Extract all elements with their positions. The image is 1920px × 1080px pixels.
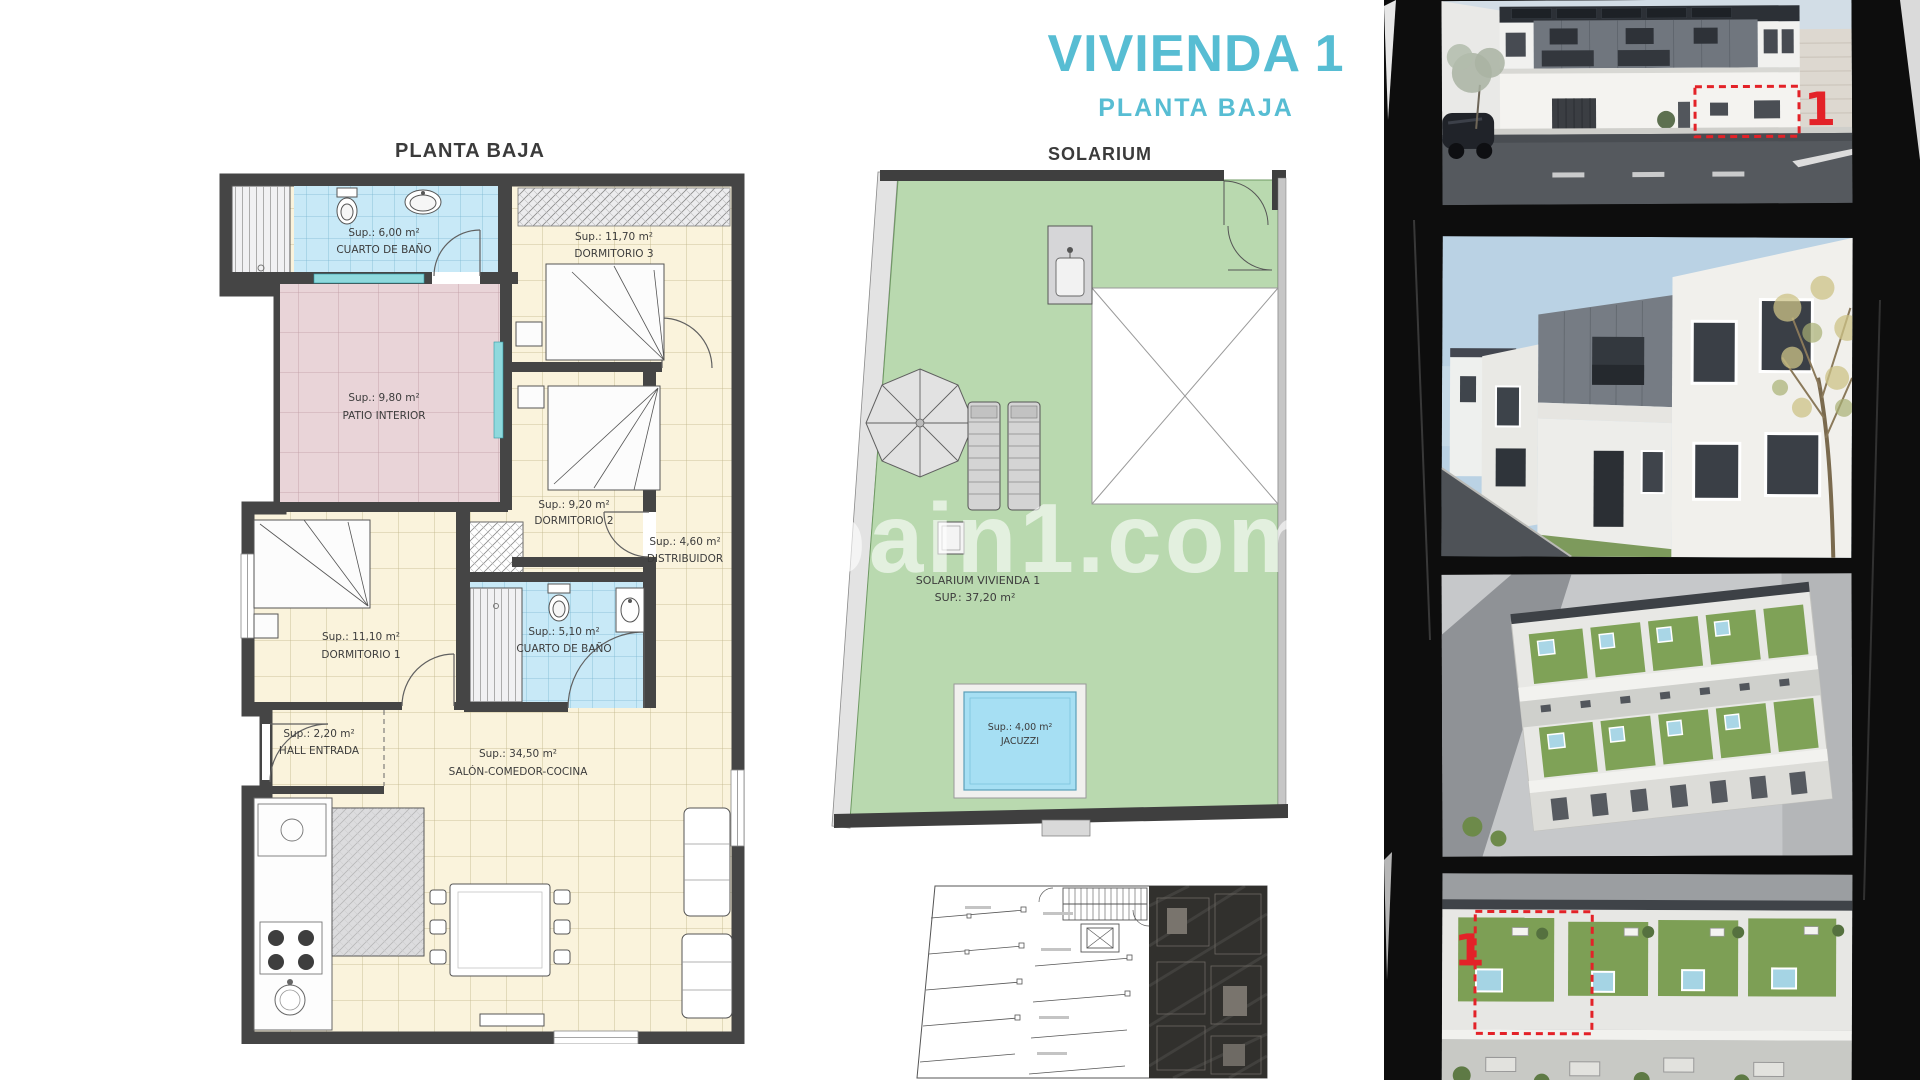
jacuzzi-area-label: Sup.: 4,00 m² (988, 722, 1053, 733)
solarium-room-label: SOLARIUM VIVIENDA 1 (916, 574, 1041, 587)
dorm3-area-label: Sup.: 11,70 m² (575, 231, 653, 243)
solarium-svg: SOLARIUM VIVIENDA 1 SUP.: 37,20 m² Sup.:… (820, 170, 1320, 850)
floorplan-svg: Sup.: 6,00 m² CUARTO DE BAÑO Sup.: 11,70… (218, 172, 748, 1044)
outdoor-sink (1048, 226, 1092, 304)
solarium-right-wall (1278, 178, 1286, 814)
side-table (938, 522, 964, 554)
dorm3-name-label: DORMITORIO 3 (574, 248, 653, 260)
keyplan-highlighted-unit (1149, 886, 1267, 1078)
dorm1-area-label: Sup.: 11,10 m² (322, 631, 400, 643)
solarium-title: SOLARIUM (980, 144, 1220, 165)
distribuidor-name-label: DISTRIBUIDOR (647, 553, 723, 565)
dorm2-area-label: Sup.: 9,20 m² (538, 499, 609, 511)
page-subtitle: PLANTA BAJA (1020, 94, 1372, 123)
keyplan-elevator (1081, 924, 1119, 952)
salon-name-label: SALÓN-COMEDOR-COCINA (449, 765, 589, 778)
solarium-void (1092, 288, 1278, 504)
photo-street-front: 1 (1441, 0, 1852, 205)
photo-aerial-roof (1442, 573, 1853, 856)
closet-dorm3 (518, 188, 730, 226)
salon-area-label: Sup.: 34,50 m² (479, 748, 557, 760)
unit-marker-1-photo1: 1 (1804, 82, 1836, 136)
solarium-step (1042, 820, 1090, 836)
floorplan-title: PLANTA BAJA (340, 140, 600, 163)
closet-distribuidor (465, 522, 523, 576)
jacuzzi-name-label: JACUZZI (1000, 736, 1039, 747)
page-title: VIVIENDA 1 (1020, 24, 1372, 84)
dorm2-name-label: DORMITORIO 2 (534, 515, 613, 527)
distribuidor-area-label: Sup.: 4,60 m² (649, 536, 720, 548)
patio-name-label: PATIO INTERIOR (342, 410, 425, 422)
solarium-area-label: SUP.: 37,20 m² (935, 591, 1016, 604)
dorm1-name-label: DORMITORIO 1 (321, 649, 400, 661)
hall-area-label: Sup.: 2,20 m² (283, 728, 354, 740)
keyplan-svg (905, 866, 1295, 1080)
bath2-area-label: Sup.: 5,10 m² (528, 626, 599, 638)
keyplan-stairs (1063, 888, 1147, 920)
page: PLANTA BAJA SOLARIUM VIVIENDA 1 PLANTA B… (0, 0, 1920, 1080)
patio-area-label: Sup.: 9,80 m² (348, 392, 419, 404)
solarium-top-wall (880, 170, 1224, 181)
bath1-name-label: CUARTO DE BAÑO (336, 243, 431, 256)
photo-aerial-marked: 1 (1442, 873, 1853, 1080)
bath2-name-label: CUARTO DE BAÑO (516, 642, 611, 655)
photo-corner-view (1441, 236, 1852, 558)
dining-set (430, 884, 570, 976)
parasol (866, 369, 974, 477)
unit-marker-1-photo4: 1 (1454, 925, 1485, 976)
hall-name-label: HALL ENTRADA (279, 745, 360, 757)
gallery-panel: 1 (1384, 0, 1920, 1080)
bath1-area-label: Sup.: 6,00 m² (348, 227, 419, 239)
